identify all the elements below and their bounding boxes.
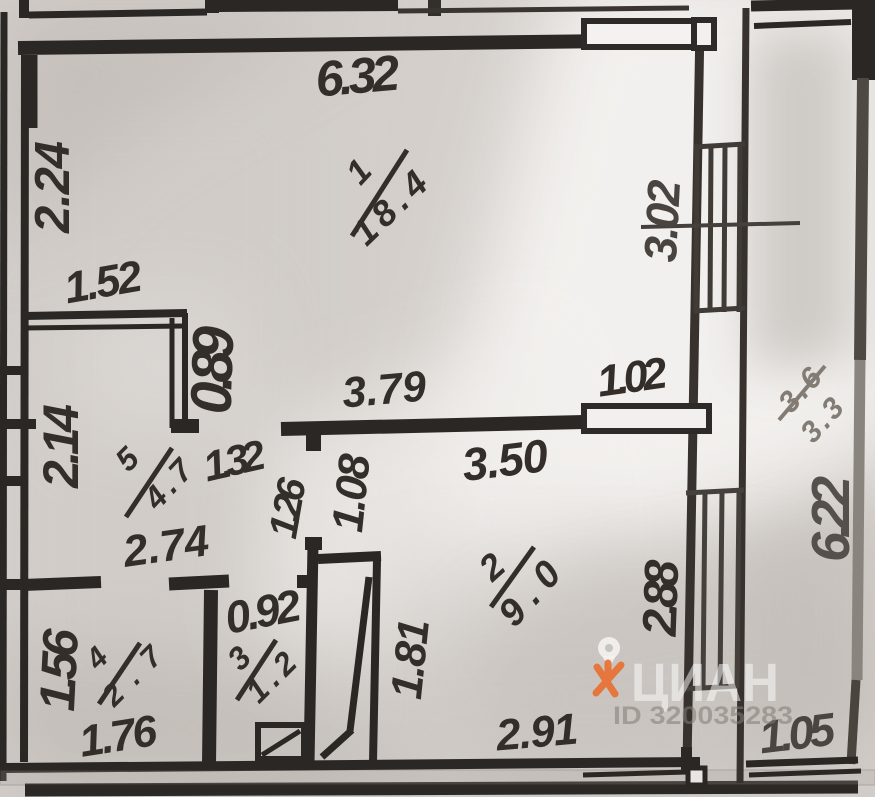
svg-text:2.91: 2.91 (493, 705, 580, 761)
svg-text:2.24: 2.24 (26, 141, 80, 234)
svg-text:0.89: 0.89 (178, 325, 246, 415)
svg-text:1.56: 1.56 (29, 626, 89, 712)
svg-text:3.79: 3.79 (340, 362, 428, 417)
svg-text:2.14: 2.14 (33, 404, 89, 489)
svg-text:ID 320035283: ID 320035283 (613, 702, 793, 730)
svg-text:1.81: 1.81 (382, 617, 439, 702)
svg-text:1.02: 1.02 (594, 348, 671, 406)
svg-text:6.22: 6.22 (801, 476, 861, 562)
svg-text:1.08: 1.08 (323, 451, 380, 534)
svg-text:2.88: 2.88 (634, 559, 690, 638)
svg-text:3.02: 3.02 (634, 178, 690, 263)
svg-text:3.50: 3.50 (459, 429, 551, 491)
svg-text:6.32: 6.32 (313, 44, 402, 107)
